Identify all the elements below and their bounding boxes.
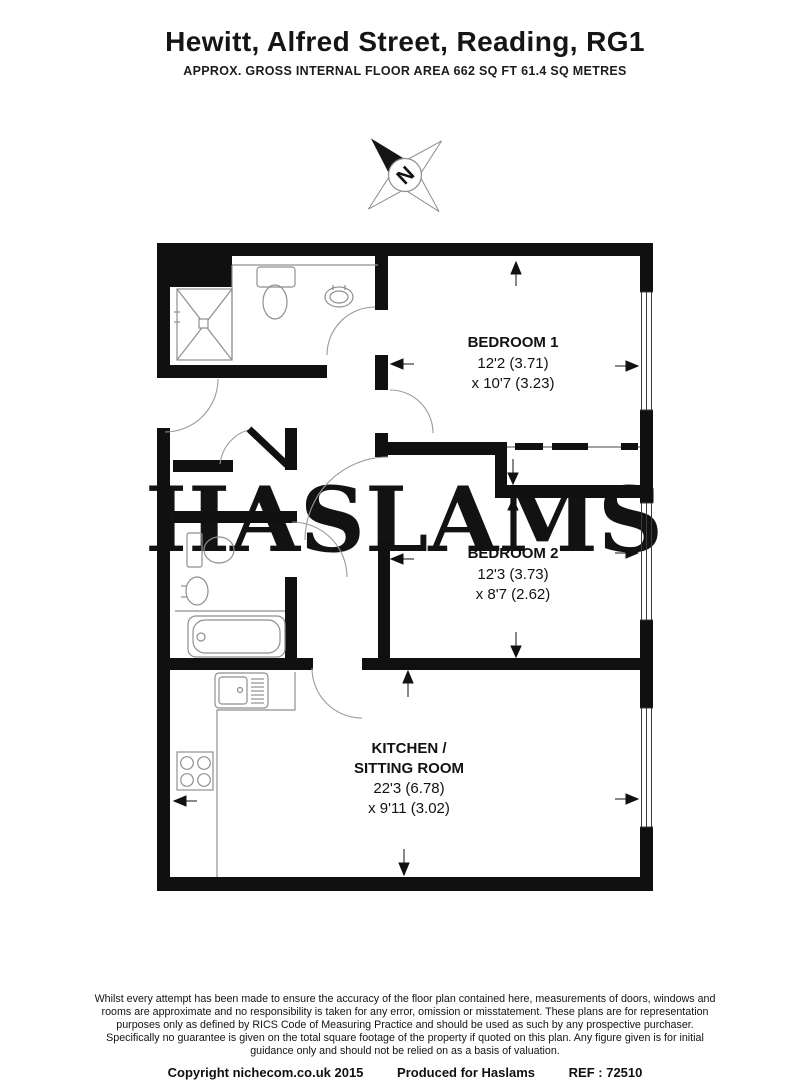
door-arc-cupboard bbox=[220, 430, 248, 464]
copyright-text: Copyright nichecom.co.uk 2015 bbox=[168, 1065, 364, 1080]
bedroom1-dim1: 12'2 (3.71) bbox=[477, 355, 548, 372]
door-arc-entrance bbox=[165, 379, 218, 432]
basin-bathroom bbox=[181, 577, 208, 605]
arrow-bedroom1-up bbox=[511, 262, 521, 286]
disclaimer-line: rooms are approximate and no responsibil… bbox=[0, 1006, 810, 1019]
disclaimer-line: purposes only as defined by RICS Code of… bbox=[0, 1019, 810, 1032]
bedroom2-label: BEDROOM 2 12'3 (3.73) x 8'7 (2.62) bbox=[468, 545, 559, 603]
wardrobe-front bbox=[507, 443, 640, 450]
footer: Whilst every attempt has been made to en… bbox=[0, 993, 810, 1080]
window-bedroom2 bbox=[640, 503, 653, 620]
window-bedroom1 bbox=[640, 292, 653, 410]
bedroom1-label: BEDROOM 1 12'2 (3.71) x 10'7 (3.23) bbox=[468, 334, 559, 392]
produced-for-text: Produced for Haslams bbox=[397, 1065, 535, 1080]
arrow-kitchen-down bbox=[399, 849, 409, 875]
kitchen-name1: KITCHEN / bbox=[372, 740, 448, 757]
bath bbox=[175, 611, 285, 657]
hob bbox=[177, 752, 213, 790]
arrow-kitchen-left bbox=[174, 796, 197, 806]
arrow-bedroom1-left bbox=[391, 359, 414, 369]
arrow-bedroom1-right bbox=[615, 361, 638, 371]
toilet-shower-room bbox=[257, 267, 295, 319]
kitchen-name2: SITTING ROOM bbox=[354, 760, 464, 777]
door-arc-kitchen bbox=[312, 668, 362, 718]
reference-number: REF : 72510 bbox=[569, 1065, 643, 1080]
kitchen-dim2: x 9'11 (3.02) bbox=[368, 800, 450, 817]
floor-plan-canvas: HASLAMS N bbox=[0, 0, 810, 1080]
disclaimer-line: Specifically no guarantee is given on th… bbox=[0, 1032, 810, 1045]
cupboard-door-leaf bbox=[249, 429, 287, 465]
copyright-line: Copyright nichecom.co.uk 2015 Produced f… bbox=[0, 1065, 810, 1080]
windows bbox=[640, 292, 653, 827]
door-arc-bedroom1 bbox=[390, 390, 433, 433]
arrow-kitchen-up bbox=[403, 671, 413, 697]
disclaimer-line: guidance only and should not be relied o… bbox=[0, 1045, 810, 1058]
vanity-edge bbox=[232, 265, 378, 360]
arrow-bedroom2-down bbox=[511, 632, 521, 657]
kitchen-label: KITCHEN / SITTING ROOM 22'3 (6.78) x 9'1… bbox=[354, 740, 464, 817]
window-kitchen bbox=[640, 708, 653, 827]
kitchen-sink bbox=[215, 673, 268, 708]
bedroom2-dim2: x 8'7 (2.62) bbox=[476, 586, 551, 603]
disclaimer-text: Whilst every attempt has been made to en… bbox=[0, 993, 810, 1058]
bedroom1-dim2: x 10'7 (3.23) bbox=[472, 375, 555, 392]
compass-rose: N bbox=[334, 104, 475, 245]
bedroom2-dim1: 12'3 (3.73) bbox=[477, 566, 548, 583]
disclaimer-line: Whilst every attempt has been made to en… bbox=[0, 993, 810, 1006]
basin-shower-room bbox=[325, 285, 353, 307]
bedroom1-name: BEDROOM 1 bbox=[468, 334, 559, 351]
arrow-kitchen-right bbox=[615, 794, 638, 804]
bedroom2-name: BEDROOM 2 bbox=[468, 545, 559, 562]
door-arc-shower-room bbox=[327, 307, 375, 355]
kitchen-dim1: 22'3 (6.78) bbox=[373, 780, 444, 797]
shower bbox=[174, 289, 232, 360]
